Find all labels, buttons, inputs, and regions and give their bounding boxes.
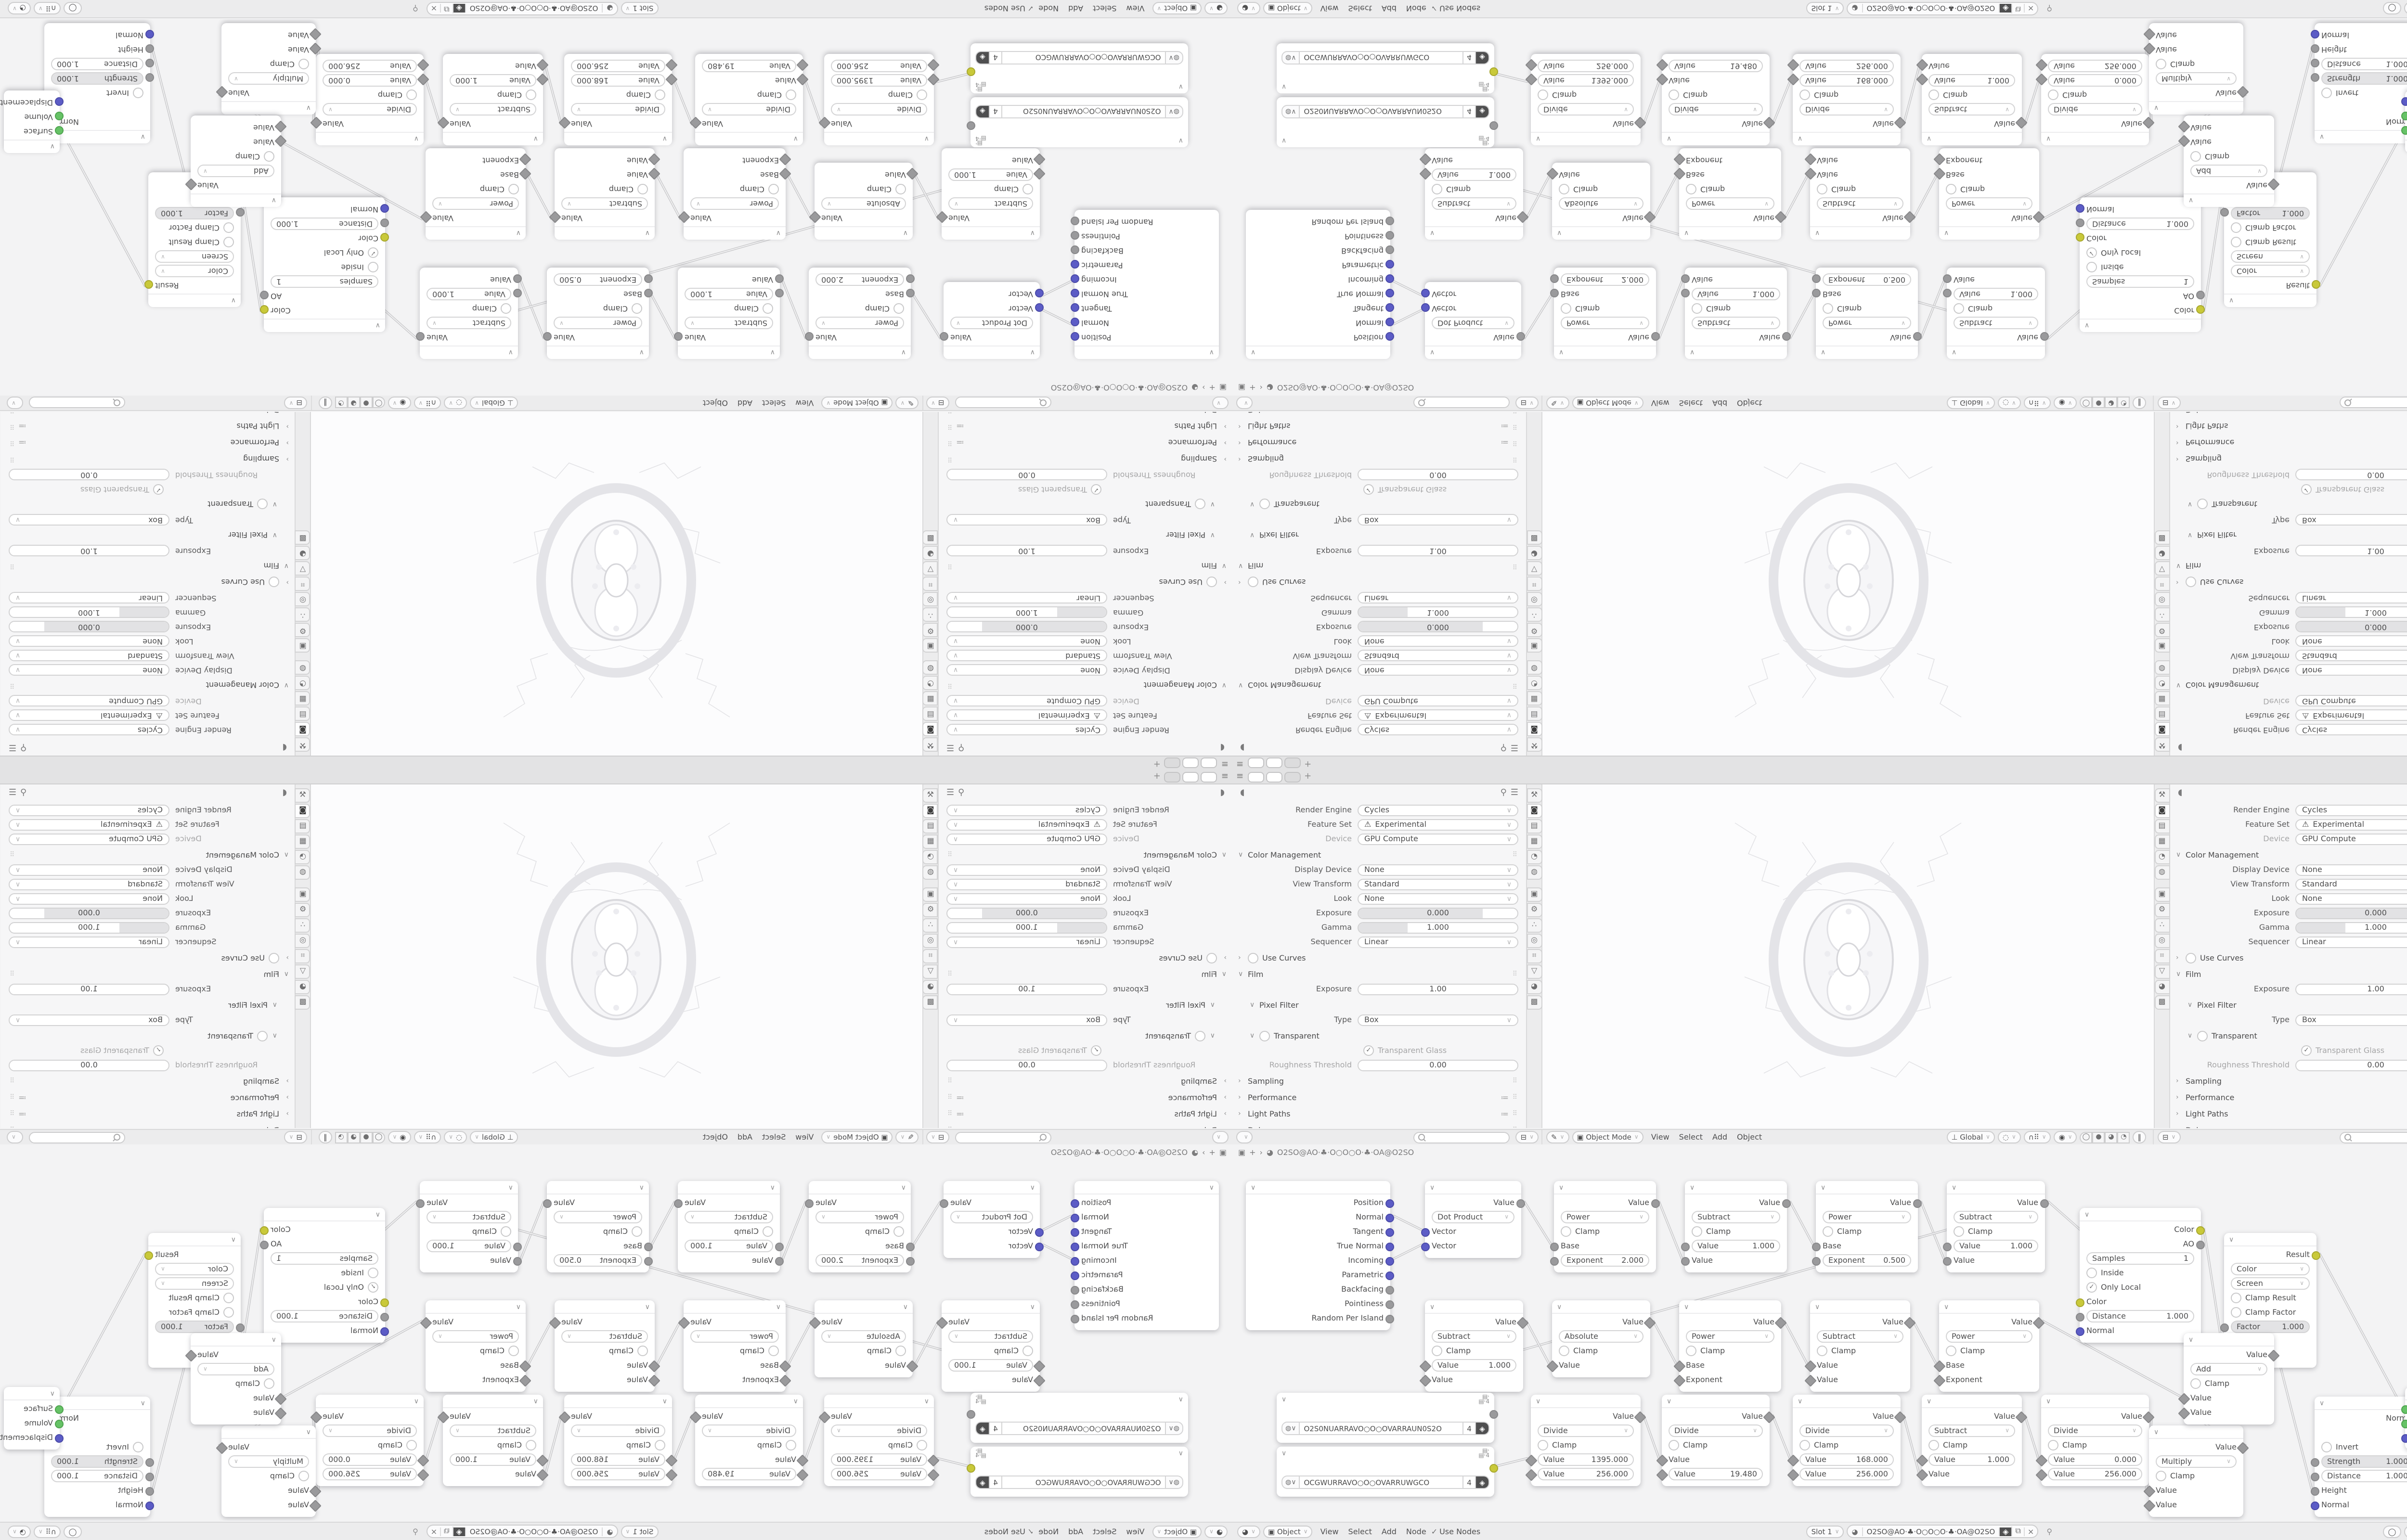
slider-exposure[interactable]: 0.000 <box>1358 907 1518 919</box>
presets-icon[interactable]: ≔ <box>18 1109 26 1118</box>
checkbox[interactable] <box>1686 1346 1696 1356</box>
workspace-tab[interactable] <box>1201 771 1217 782</box>
input-socket[interactable] <box>145 73 154 82</box>
tab-render-icon[interactable]: ◙ <box>1527 804 1542 818</box>
editor-type-button[interactable]: ⊟∨ <box>1516 397 1539 409</box>
input-socket[interactable] <box>1943 289 1952 297</box>
image-name[interactable]: OCGWURRAVO○O○OVARRUWGCO <box>1001 1476 1165 1489</box>
checkbox[interactable] <box>368 1268 378 1278</box>
tab-render-icon[interactable]: ◙ <box>2154 804 2170 818</box>
checkbox[interactable] <box>257 1030 268 1041</box>
node-div2[interactable]: ∨ValueDivide∨ClampValueValue19.480 <box>1662 54 1770 145</box>
editor-type-button[interactable]: ◕∨ <box>1204 1525 1228 1538</box>
node-imgB[interactable]: ∨▤˒▤˒4◍∨OCGWURRAVO○O○OVARRUWGCO4◈ <box>1277 1447 1494 1497</box>
checkbox[interactable] <box>1206 577 1217 588</box>
node-div4[interactable]: ∨ValueDivide∨ClampValue0.000Value256.000 <box>2041 1395 2149 1486</box>
operation-dropdown[interactable]: Subtract∨ <box>685 1211 773 1223</box>
operation-dropdown[interactable]: Multiply∨ <box>2156 72 2237 85</box>
node-abs[interactable]: ∨ValueAbsolute∨ClampValue <box>815 163 913 240</box>
node-header[interactable]: ∨ <box>420 346 518 359</box>
fake-user-shield-icon[interactable]: ◈ <box>975 105 989 118</box>
checkbox[interactable] <box>1954 303 1964 314</box>
tab-material-icon[interactable]: ◕ <box>923 546 938 560</box>
collapse-chevron-icon[interactable]: ∨ <box>508 1183 513 1191</box>
mode-selector[interactable]: ▣ Object Mode∨ <box>821 1131 893 1143</box>
presets-icon[interactable]: ≔ <box>956 1109 964 1118</box>
collapse-chevron-icon[interactable]: ∨ <box>141 133 145 141</box>
section-debug[interactable]: ›Debug⠿ <box>1238 1123 1518 1128</box>
number-roughness-threshold[interactable]: 0.00 <box>9 469 169 481</box>
node-pow2[interactable]: ∨ValuePower∨ClampBaseExponent0.500 <box>1816 268 1918 359</box>
node-header[interactable]: ∨ <box>678 1181 780 1194</box>
output-socket-true normal[interactable] <box>1385 289 1394 297</box>
checkbox[interactable]: ✓ <box>368 247 378 258</box>
checkbox[interactable]: ✓ <box>1091 1045 1101 1056</box>
input-socket-base[interactable] <box>1550 1243 1559 1251</box>
operation-dropdown[interactable]: Power∨ <box>1946 1330 2032 1343</box>
checkbox[interactable] <box>1561 303 1571 314</box>
node-header[interactable]: ∨▤˒▤˒4 <box>1277 1393 1494 1405</box>
tab-physics-icon[interactable]: ◎ <box>1527 934 1542 948</box>
number-exposure[interactable]: 1.00 <box>9 983 169 995</box>
operation-dropdown[interactable]: Subtract∨ <box>1954 317 2038 329</box>
input-socket[interactable] <box>2076 218 2084 227</box>
collapse-chevron-icon[interactable]: ∨ <box>2319 1399 2324 1407</box>
node-header[interactable]: ∨ <box>809 1181 911 1194</box>
tab-object-icon[interactable]: ▣ <box>295 887 311 902</box>
material-datablock[interactable]: ◕ O2SO@AO·♣·O○O○O·♣·OA@O2SO ◈ ⧉ × <box>427 1525 618 1538</box>
shader-node-editor[interactable]: ▣ + › ◕ O2SO@AO·♣·O○O○O·♣·OA@O2SO ∨Posit… <box>0 19 1232 396</box>
collapse-chevron-icon[interactable]: ∨ <box>639 349 644 357</box>
filter-icon[interactable]: ☰ <box>946 788 954 798</box>
node-sub1[interactable]: ∨ValueSubtract∨ClampValue1.000Value <box>678 268 780 359</box>
node-header[interactable]: ∨ <box>564 1395 672 1408</box>
app-menu-icon[interactable]: ≡ <box>1236 758 1243 768</box>
checkbox[interactable] <box>1817 184 1827 194</box>
node-header[interactable]: ∨ <box>191 193 281 207</box>
shader-node-editor[interactable]: ▣ + › ◕ O2SO@AO·♣·O○O○O·♣·OA@O2SO ∨Posit… <box>0 1144 1232 1521</box>
operation-dropdown[interactable]: Power∨ <box>432 1330 519 1343</box>
section-performance[interactable]: ›Performance≔⠿ <box>946 436 1227 449</box>
snap-button[interactable]: ∩⠿∨ <box>414 1131 441 1143</box>
input-socket-displacement[interactable] <box>55 97 64 106</box>
checkbox[interactable]: ✓ <box>153 1045 164 1056</box>
input-socket-displacement[interactable] <box>2401 1434 2407 1443</box>
node-dot[interactable]: ∨ValueDot Product∨VectorVector <box>1425 1181 1521 1258</box>
slider-exposure[interactable]: 0.000 <box>2295 621 2407 633</box>
checkbox[interactable] <box>1669 1440 1679 1450</box>
image-name[interactable]: OCGWURRAVO○O○OVARRUWGCO <box>1001 51 1165 64</box>
user-count[interactable]: 4 <box>1463 1422 1476 1435</box>
menu-select[interactable]: Select <box>762 398 786 407</box>
checkbox[interactable] <box>2321 1442 2332 1452</box>
section-color-management[interactable]: ∨Color Management⠿ <box>946 848 1227 861</box>
node-header[interactable]: ∨ <box>2405 140 2407 153</box>
tab-material-icon[interactable]: ◕ <box>2154 980 2170 994</box>
collapse-chevron-icon[interactable]: ∨ <box>414 1397 419 1405</box>
operation-dropdown[interactable]: Power∨ <box>432 197 519 210</box>
collapse-chevron-icon[interactable]: ∨ <box>645 230 650 237</box>
section-transparent[interactable]: ∨Transparent <box>1250 498 1518 511</box>
dropdown-type[interactable]: Box∨ <box>2295 1014 2407 1026</box>
checkbox[interactable] <box>223 237 234 247</box>
checkbox[interactable] <box>2156 1471 2166 1481</box>
checkbox[interactable]: ✓ <box>2301 484 2312 495</box>
input-socket-value[interactable] <box>1681 1257 1690 1266</box>
input-socket-vector[interactable] <box>1035 289 1044 297</box>
value-field[interactable]: Distance1.000 <box>51 58 143 70</box>
operation-dropdown[interactable]: Divide∨ <box>702 1424 796 1437</box>
output-socket-tangent[interactable] <box>1385 1228 1394 1237</box>
input-socket-volume[interactable] <box>55 1420 64 1428</box>
node-div2[interactable]: ∨ValueDivide∨ClampValueValue19.480 <box>695 54 803 145</box>
operation-dropdown[interactable]: Divide∨ <box>1799 1424 1894 1437</box>
proportional-edit-button[interactable]: ◉∨ <box>388 1131 411 1143</box>
value-field[interactable]: Value1.000 <box>685 288 773 300</box>
image-datablock-row[interactable]: ◍∨OCGWURRAVO○O○OVARRUWGCO4◈ <box>971 1476 1188 1493</box>
fake-user-shield-icon[interactable]: ◈ <box>975 51 989 64</box>
presets-icon[interactable]: ≔ <box>18 422 26 431</box>
snap-button[interactable]: ∩⠿∨ <box>34 1525 61 1538</box>
filter-icon[interactable]: ☰ <box>1511 788 1518 798</box>
shading-mode-0[interactable]: ◯ <box>2080 397 2093 409</box>
output-socket[interactable] <box>967 1410 975 1419</box>
node-powB[interactable]: ∨ValuePower∨ClampBaseExponent <box>1679 1300 1781 1392</box>
node-subB2[interactable]: ∨ValueSubtract∨ClampValueValue <box>1810 148 1910 240</box>
collapse-chevron-icon[interactable]: ∨ <box>1430 1183 1435 1191</box>
proportional-edit-button[interactable]: ◉∨ <box>2054 397 2077 409</box>
output-socket-value[interactable] <box>543 332 552 341</box>
fake-user-shield-icon[interactable]: ◈ <box>975 1422 989 1435</box>
tab-object-data-icon[interactable]: ▽ <box>2154 964 2170 979</box>
menu-add[interactable]: Add <box>1068 1527 1083 1536</box>
fake-user-shield-icon[interactable]: ◈ <box>1476 1422 1489 1435</box>
search-input[interactable] <box>2339 397 2407 409</box>
checkbox[interactable] <box>2190 1378 2201 1389</box>
shading-mode-0[interactable]: ◯ <box>2080 1131 2093 1143</box>
value-field[interactable]: Value256.000 <box>571 1468 665 1480</box>
operation-dropdown[interactable]: Subtract∨ <box>427 317 511 329</box>
output-socket-backfacing[interactable] <box>1071 1286 1079 1295</box>
slider-exposure[interactable]: 0.000 <box>9 621 169 633</box>
section-performance[interactable]: ›Performance≔⠿ <box>9 1091 289 1104</box>
checkbox[interactable]: ✓ <box>2086 1282 2097 1293</box>
collapse-chevron-icon[interactable]: ∨ <box>533 1397 538 1405</box>
checkbox[interactable] <box>1195 1030 1205 1041</box>
checkbox[interactable] <box>1432 1346 1442 1356</box>
node-header[interactable]: ∨ <box>1531 1395 1641 1408</box>
menu-view[interactable]: View <box>1651 398 1669 407</box>
input-socket-surface[interactable] <box>55 1405 64 1414</box>
tab-view-layer-icon[interactable]: ▦ <box>295 691 311 706</box>
collapse-chevron-icon[interactable]: ∨ <box>1178 1395 1183 1403</box>
section-performance[interactable]: ›Performance≔⠿ <box>946 1091 1227 1104</box>
input-socket-height[interactable] <box>145 44 154 53</box>
operation-dropdown[interactable]: Subtract∨ <box>1817 1330 1903 1343</box>
node-sub3[interactable]: ∨ValueSubtract∨ClampValue1.000Value <box>1922 54 2022 145</box>
menu-select[interactable]: Select <box>1348 4 1372 13</box>
dropdown-feature-set[interactable]: ⚠Experimental∨ <box>2295 819 2407 830</box>
collapse-chevron-icon[interactable]: ∨ <box>1821 349 1825 357</box>
output-socket-position[interactable] <box>1071 332 1079 341</box>
dropdown-render-engine[interactable]: Cycles∨ <box>9 804 169 816</box>
output-socket-backfacing[interactable] <box>1071 245 1079 254</box>
value-field[interactable]: Value168.000 <box>1799 1453 1894 1466</box>
node-pow2[interactable]: ∨ValuePower∨ClampBaseExponent0.500 <box>1816 1181 1918 1272</box>
tab-physics-icon[interactable]: ◎ <box>923 592 938 606</box>
collapse-chevron-icon[interactable]: ∨ <box>1281 1395 1286 1403</box>
input-socket[interactable] <box>1681 1243 1690 1251</box>
browse-image-icon[interactable]: ◍∨ <box>1281 1422 1300 1435</box>
section-use-curves[interactable]: ›Use Curves <box>9 576 289 589</box>
checkbox[interactable] <box>508 184 519 194</box>
operation-dropdown[interactable]: Screen∨ <box>155 1277 234 1290</box>
output-socket-result[interactable] <box>2312 280 2320 289</box>
image-datablock-row[interactable]: ◍∨OCGWURRAVO○O○OVARRUWGCO4◈ <box>1277 1476 1494 1493</box>
operation-dropdown[interactable]: Add∨ <box>197 1363 274 1375</box>
section-transparent[interactable]: ∨Transparent <box>946 498 1215 511</box>
checkbox[interactable] <box>786 1440 796 1450</box>
value-field[interactable]: Value1395.000 <box>1538 1453 1634 1466</box>
section-sampling[interactable]: ›Sampling⠿ <box>1238 1074 1518 1088</box>
node-header[interactable]: ∨ <box>1922 1395 2022 1408</box>
node-header[interactable]: ∨ <box>824 132 934 145</box>
workspace-tab[interactable] <box>1201 758 1217 769</box>
value-field[interactable]: Exponent0.500 <box>554 273 642 286</box>
checkbox[interactable] <box>2197 499 2208 510</box>
node-header[interactable]: ∨ <box>695 132 803 145</box>
node-header[interactable]: ∨ <box>2041 132 2149 145</box>
section-transparent[interactable]: ∨Transparent <box>2187 498 2407 511</box>
pivot-point-button[interactable]: ◌∨ <box>1998 1131 2021 1143</box>
collapse-chevron-icon[interactable]: ∨ <box>1209 1183 1214 1191</box>
collapse-chevron-icon[interactable]: ∨ <box>2319 133 2324 141</box>
output-socket-incoming[interactable] <box>1385 1257 1394 1266</box>
operation-dropdown[interactable]: Absolute∨ <box>821 197 906 210</box>
value-field[interactable]: Value1.000 <box>1432 168 1516 181</box>
editor-type-button[interactable]: ◕∨ <box>1204 2 1228 15</box>
input-socket[interactable] <box>644 274 653 283</box>
node-div3[interactable]: ∨ValueDivide∨ClampValue168.000Value256.0… <box>564 54 672 145</box>
section-performance[interactable]: ›Performance≔⠿ <box>1238 436 1518 449</box>
node-header[interactable]: ∨ <box>1662 132 1770 145</box>
node-ao[interactable]: ∨ColorAOSamples1Inside✓Only LocalColorDi… <box>264 1208 385 1343</box>
tab-texture-icon[interactable]: ▩ <box>295 995 311 1010</box>
operation-dropdown[interactable]: Divide∨ <box>1538 103 1634 115</box>
collapse-chevron-icon[interactable]: ∨ <box>1798 1397 1802 1405</box>
pin-icon[interactable]: ⚲ <box>1501 742 1507 752</box>
node-header[interactable]: ∨ <box>1552 1300 1650 1314</box>
output-socket-value[interactable] <box>940 332 948 341</box>
collapse-chevron-icon[interactable]: ∨ <box>639 1183 644 1191</box>
node-geo[interactable]: ∨PositionNormalTangentTrue NormalIncomin… <box>1074 210 1219 359</box>
node-pow2[interactable]: ∨ValuePower∨ClampBaseExponent0.500 <box>547 1181 649 1272</box>
collapse-chevron-icon[interactable]: ∨ <box>1030 1183 1035 1191</box>
dropdown-sequencer[interactable]: Linear∨ <box>9 592 169 604</box>
collapse-chevron-icon[interactable]: ∨ <box>2188 1335 2193 1343</box>
operation-dropdown[interactable]: Subtract∨ <box>948 197 1033 210</box>
node-header[interactable]: ∨▤˒▤˒4 <box>971 81 1188 93</box>
tab-material-icon[interactable]: ◕ <box>923 980 938 994</box>
dropdown-look[interactable]: None∨ <box>946 636 1107 647</box>
pin-icon[interactable]: ⚲ <box>1501 788 1507 798</box>
collapse-chevron-icon[interactable]: ∨ <box>901 1183 906 1191</box>
value-field[interactable]: Distance1.000 <box>2086 218 2194 230</box>
checkbox[interactable] <box>1206 952 1217 963</box>
node-subB1[interactable]: ∨ValueSubtract∨ClampValue1.000Value <box>942 1300 1040 1392</box>
tab-texture-icon[interactable]: ▩ <box>923 995 938 1010</box>
dropdown-view-transform[interactable]: Standard∨ <box>1358 650 1518 662</box>
editor-type-button[interactable]: ⊟∨ <box>2158 1131 2180 1143</box>
node-powC[interactable]: ∨ValuePower∨ClampBaseExponent <box>426 148 526 240</box>
tab-modifiers-icon[interactable]: ⚙ <box>923 903 938 917</box>
operation-dropdown[interactable]: Divide∨ <box>571 1424 665 1437</box>
input-socket[interactable] <box>775 1243 784 1251</box>
node-div3[interactable]: ∨ValueDivide∨ClampValue168.000Value256.0… <box>1793 54 1901 145</box>
transform-orientation[interactable]: ⊥ Global∨ <box>1946 1131 1995 1143</box>
section-light-paths[interactable]: ›Light Paths≔⠿ <box>2176 1107 2407 1120</box>
operation-dropdown[interactable]: Subtract∨ <box>1692 1211 1780 1223</box>
collapse-chevron-icon[interactable]: ∨ <box>2084 1210 2089 1218</box>
checkbox[interactable] <box>2186 952 2196 963</box>
value-field[interactable]: Value0.000 <box>323 74 417 87</box>
tab-object-data-icon[interactable]: ▽ <box>923 561 938 576</box>
operation-dropdown[interactable]: Power∨ <box>1686 197 1774 210</box>
output-socket-position[interactable] <box>1071 1199 1079 1208</box>
collapse-chevron-icon[interactable]: ∨ <box>1209 349 1214 357</box>
editor-type-button[interactable]: ⊟∨ <box>2158 397 2180 409</box>
tab-render-icon[interactable]: ◙ <box>295 804 311 818</box>
node-header[interactable]: ∨ <box>443 132 543 145</box>
input-socket-value[interactable] <box>1943 1257 1952 1266</box>
operation-dropdown[interactable]: Dot Product∨ <box>950 1211 1033 1223</box>
slider-gamma[interactable]: 1.000 <box>2295 607 2407 618</box>
operation-dropdown[interactable]: Add∨ <box>2190 165 2267 177</box>
slider-exposure[interactable]: 0.000 <box>946 621 1107 633</box>
tab-render-icon[interactable]: ◙ <box>923 804 938 818</box>
value-field[interactable]: Value256.000 <box>2048 60 2142 72</box>
tab-physics-icon[interactable]: ◎ <box>2154 934 2170 948</box>
output-socket-value[interactable] <box>1516 1199 1525 1208</box>
tab-material-icon[interactable]: ◕ <box>2154 546 2170 560</box>
section-light-paths[interactable]: ›Light Paths≔⠿ <box>1238 1107 1518 1120</box>
collapse-chevron-icon[interactable]: ∨ <box>1178 1449 1183 1457</box>
tab-scene-icon[interactable]: ◔ <box>2154 676 2170 690</box>
node-header[interactable]: ∨ <box>1922 132 2022 145</box>
node-header[interactable]: ∨ <box>264 319 385 332</box>
dropdown-sequencer[interactable]: Linear∨ <box>946 936 1107 948</box>
checkbox[interactable] <box>223 1293 234 1303</box>
section-sampling[interactable]: ›Sampling⠿ <box>1238 452 1518 466</box>
value-field[interactable]: Value1.000 <box>450 1453 536 1466</box>
node-header[interactable]: ∨ <box>148 294 241 307</box>
node-mul2[interactable]: ∨ValueMultiply∨ClampValueValue <box>221 1425 316 1517</box>
node-header[interactable]: ∨ <box>2149 101 2243 115</box>
dropdown-look[interactable]: None∨ <box>9 636 169 647</box>
fake-user-shield-icon[interactable]: ◈ <box>975 1476 989 1489</box>
tab-particles-icon[interactable]: ∴ <box>295 918 311 933</box>
node-subB1[interactable]: ∨ValueSubtract∨ClampValue1.000Value <box>1425 1300 1523 1392</box>
image-name[interactable]: O2S0NUARRAVO○O○OVARRAUN0S2O <box>1300 105 1463 118</box>
tab-constraints-icon[interactable]: ⌗ <box>2154 949 2170 963</box>
section-film[interactable]: ∨Film⠿ <box>946 559 1227 573</box>
menu-view[interactable]: View <box>1651 1133 1669 1142</box>
node-header[interactable]: ∨▤˒▤˒4 <box>971 1393 1188 1405</box>
tab-view-layer-icon[interactable]: ▦ <box>1527 834 1542 849</box>
node-mul2[interactable]: ∨ValueMultiply∨ClampValueValue <box>221 23 316 115</box>
input-socket-base[interactable] <box>1550 289 1559 297</box>
collapse-chevron-icon[interactable]: ∨ <box>2084 322 2089 330</box>
pin-icon[interactable]: ⚲ <box>2046 4 2052 13</box>
section-performance[interactable]: ›Performance≔⠿ <box>9 436 289 449</box>
node-header[interactable]: ∨ <box>942 226 1040 240</box>
output-socket-color[interactable] <box>2196 1226 2205 1235</box>
operation-dropdown[interactable]: Screen∨ <box>2231 250 2310 263</box>
dropdown-render-engine[interactable]: Cycles∨ <box>946 804 1107 816</box>
input-socket-vector[interactable] <box>1035 1228 1044 1237</box>
tab-tool-icon[interactable]: ⚒ <box>295 737 311 752</box>
fake-user-shield-icon[interactable]: ◈ <box>1476 51 1489 64</box>
checkbox[interactable] <box>2321 88 2332 98</box>
value-field[interactable]: Factor1.000 <box>2231 207 2310 219</box>
tab-view-layer-icon[interactable]: ▦ <box>923 691 938 706</box>
node-header[interactable]: ∨▤˒▤˒4 <box>1277 81 1494 93</box>
tab-object-icon[interactable]: ▣ <box>295 638 311 653</box>
node-header[interactable]: ∨ <box>1679 226 1781 240</box>
number-roughness-threshold[interactable]: 0.00 <box>9 1059 169 1071</box>
menu-add[interactable]: Add <box>1068 4 1083 13</box>
checkbox[interactable] <box>1823 1226 1833 1237</box>
checkbox[interactable] <box>2048 1440 2058 1450</box>
workspace-tab-active[interactable] <box>1165 758 1181 769</box>
tab-output-icon[interactable]: ▤ <box>2154 706 2170 721</box>
shading-mode-1[interactable]: ● <box>360 1131 373 1143</box>
checkbox[interactable] <box>2156 59 2166 69</box>
slider-gamma[interactable]: 1.000 <box>9 607 169 618</box>
node-header[interactable]: ∨ <box>1554 346 1656 359</box>
collapse-chevron-icon[interactable]: ∨ <box>1557 1303 1562 1310</box>
section-sampling[interactable]: ›Sampling⠿ <box>946 1074 1227 1088</box>
number-roughness-threshold[interactable]: 0.00 <box>2295 1059 2407 1071</box>
operation-dropdown[interactable]: Subtract∨ <box>561 197 648 210</box>
collapse-chevron-icon[interactable]: ∨ <box>533 135 538 143</box>
dropdown-device[interactable]: GPU Compute∨ <box>9 695 169 707</box>
shading-mode-2[interactable]: ◕ <box>348 397 360 409</box>
node-header[interactable]: ∨▤˒▤˒4 <box>971 135 1188 147</box>
node-out[interactable]: ∨SurfaceVolumeDisplacement <box>4 1387 60 1450</box>
checkbox[interactable] <box>1248 952 1258 963</box>
output-socket-position[interactable] <box>1385 332 1394 341</box>
input-socket-normal[interactable] <box>2076 1327 2084 1336</box>
output-socket-normal[interactable] <box>1385 1214 1394 1222</box>
input-socket[interactable] <box>1812 274 1821 283</box>
operation-dropdown[interactable]: Screen∨ <box>2231 1277 2310 1290</box>
section-sampling[interactable]: ›Sampling⠿ <box>946 452 1227 466</box>
tab-scene-icon[interactable]: ◔ <box>2154 850 2170 864</box>
checkbox[interactable]: ✓ <box>153 484 164 495</box>
checkbox[interactable] <box>264 1378 274 1389</box>
menu-object[interactable]: Object <box>703 1133 728 1142</box>
operation-dropdown[interactable]: Multiply∨ <box>228 1455 309 1468</box>
section-sampling[interactable]: ›Sampling⠿ <box>9 1074 289 1088</box>
dropdown-sequencer[interactable]: Linear∨ <box>1358 936 1518 948</box>
checkbox[interactable] <box>2086 1268 2097 1278</box>
input-socket[interactable] <box>145 1473 154 1481</box>
shader-mode-selector[interactable]: ▣ Object∨ <box>1263 1525 1313 1538</box>
operation-dropdown[interactable]: Power∨ <box>1946 197 2032 210</box>
pause-render-button[interactable]: ‖ <box>319 1131 332 1143</box>
collapse-chevron-icon[interactable]: ∨ <box>375 322 380 330</box>
